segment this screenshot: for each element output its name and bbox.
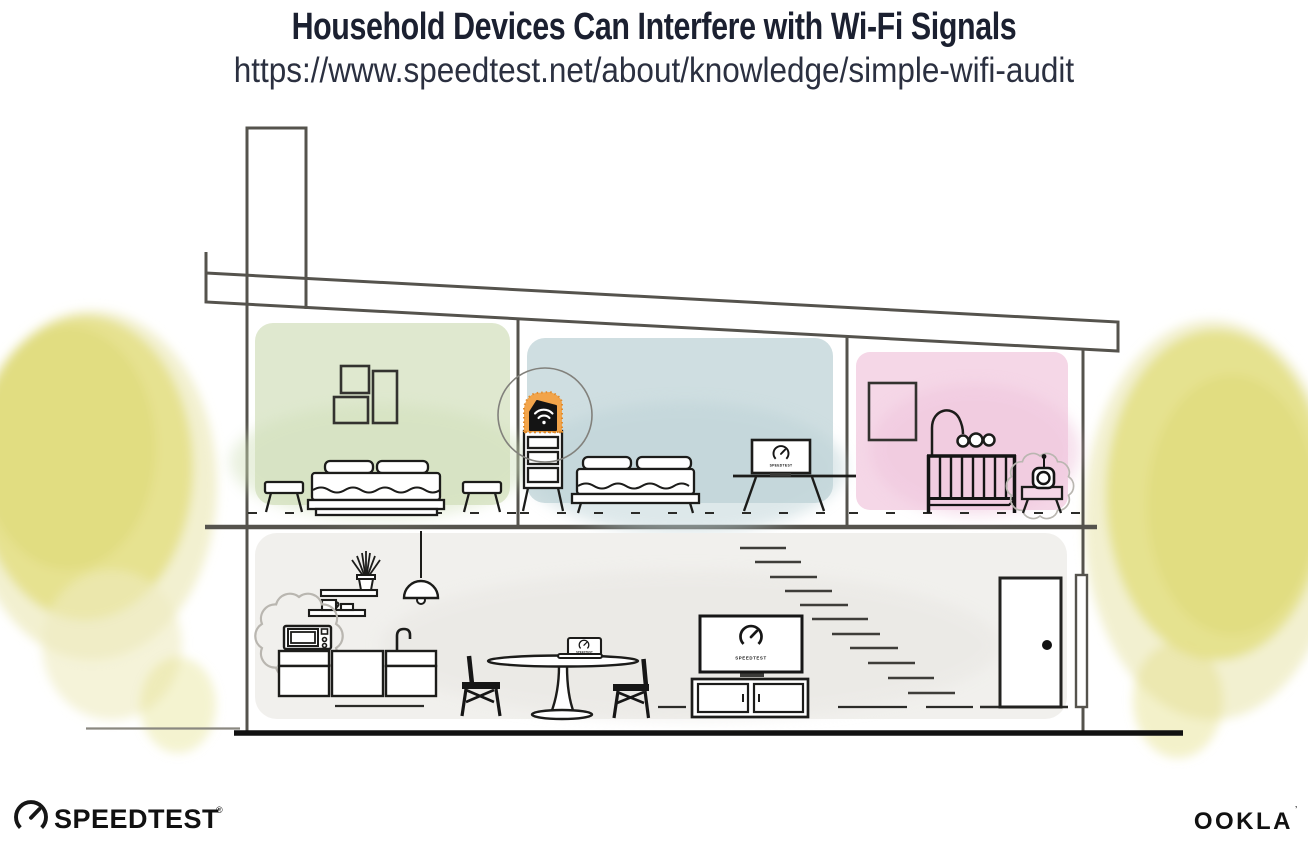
tv-screen bbox=[700, 616, 802, 672]
speedtest-reg-mark: ® bbox=[216, 805, 223, 815]
bedroom-monitor: SPEEDTEST bbox=[752, 440, 810, 477]
ookla-trademark-mark: ’ bbox=[1295, 805, 1297, 816]
room-downstairs: SPEEDTEST bbox=[255, 531, 1087, 720]
tree-left bbox=[0, 310, 217, 753]
tv-screen-label: SPEEDTEST bbox=[735, 656, 767, 661]
wifi-router-icon bbox=[530, 401, 556, 430]
ookla-logo: OOKLA ’ bbox=[1194, 805, 1297, 835]
speedtest-logo: SPEEDTEST ® bbox=[16, 802, 223, 834]
media-cabinet bbox=[692, 679, 808, 717]
door-knob bbox=[1042, 640, 1052, 650]
room-center-bedroom: SPEEDTEST bbox=[498, 338, 869, 534]
bedroom-screen-label: SPEEDTEST bbox=[770, 464, 793, 468]
speedtest-logo-text: SPEEDTEST bbox=[54, 804, 219, 834]
tv-stand bbox=[740, 674, 764, 678]
footer: SPEEDTEST ® OOKLA ’ bbox=[16, 802, 1297, 835]
media-area: SPEEDTEST bbox=[692, 616, 808, 717]
laptop-screen-label: SPEEDTEST bbox=[576, 651, 593, 654]
wifi-infographic: Household Devices Can Interfere with Wi-… bbox=[0, 0, 1308, 861]
room-nursery bbox=[849, 352, 1082, 518]
kitchen-counter bbox=[279, 651, 436, 696]
room-master-bedroom bbox=[230, 323, 530, 520]
ookla-logo-text: OOKLA bbox=[1194, 808, 1293, 835]
microwave-icon bbox=[284, 626, 331, 649]
house-illustration: SPEEDTEST bbox=[0, 0, 1308, 861]
downspout bbox=[1076, 575, 1087, 707]
tree-right bbox=[1084, 320, 1308, 758]
bed bbox=[308, 461, 444, 515]
speedtest-gauge-icon bbox=[16, 802, 46, 828]
